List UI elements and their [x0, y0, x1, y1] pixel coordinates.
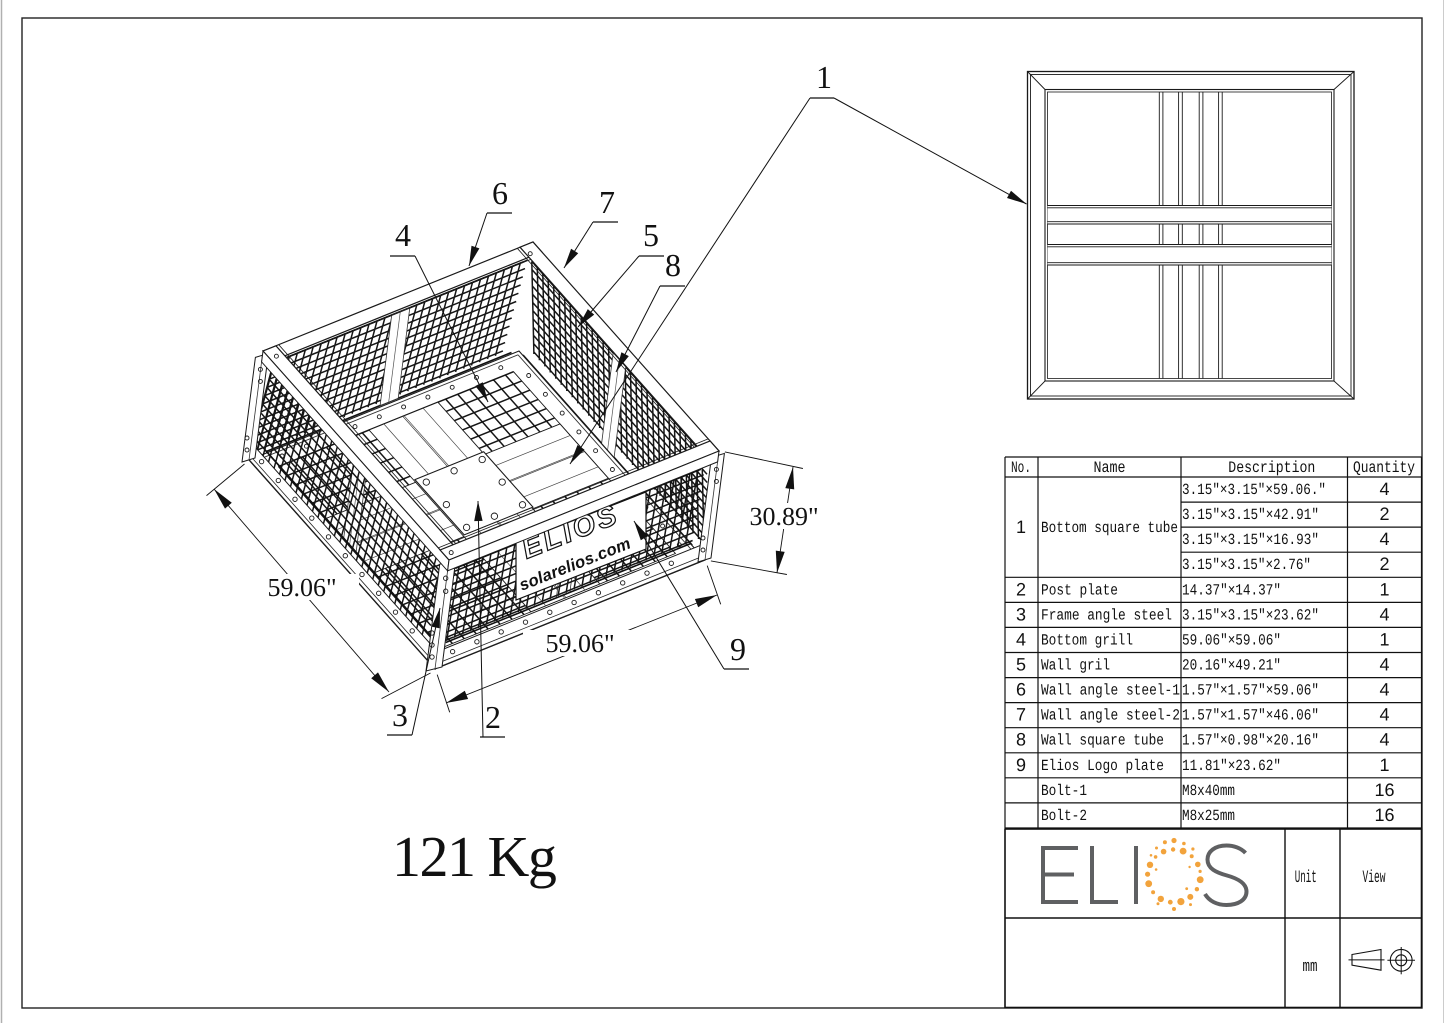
svg-text:mm: mm	[1303, 958, 1318, 977]
svg-text:Wall angle steel-1: Wall angle steel-1	[1041, 682, 1180, 700]
svg-text:View: View	[1363, 868, 1386, 888]
svg-text:3.15"×3.15"×42.91": 3.15"×3.15"×42.91"	[1182, 506, 1319, 524]
svg-text:3.15"×3.15"×59.06.": 3.15"×3.15"×59.06."	[1182, 481, 1326, 499]
svg-text:Elios Logo plate: Elios Logo plate	[1041, 757, 1164, 775]
svg-text:M8x25mm: M8x25mm	[1182, 807, 1235, 825]
svg-text:1: 1	[1379, 629, 1389, 649]
svg-text:2: 2	[1016, 579, 1026, 599]
svg-text:Quantity: Quantity	[1353, 459, 1415, 477]
svg-text:4: 4	[1379, 604, 1389, 624]
svg-text:6: 6	[1016, 680, 1026, 700]
svg-text:16: 16	[1374, 780, 1394, 800]
svg-text:No.: No.	[1011, 459, 1031, 477]
svg-text:Unit: Unit	[1295, 868, 1317, 888]
svg-text:9: 9	[730, 631, 746, 667]
svg-text:7: 7	[1016, 705, 1026, 725]
svg-text:11.81"×23.62": 11.81"×23.62"	[1182, 757, 1281, 775]
svg-text:14.37"×14.37": 14.37"×14.37"	[1182, 581, 1281, 599]
svg-text:20.16"×49.21": 20.16"×49.21"	[1182, 657, 1281, 675]
svg-text:1.57"×1.57"×46.06": 1.57"×1.57"×46.06"	[1182, 707, 1319, 725]
svg-text:16: 16	[1374, 805, 1394, 825]
svg-text:121 Kg: 121 Kg	[392, 824, 556, 889]
svg-text:Name: Name	[1094, 459, 1126, 477]
svg-text:4: 4	[395, 217, 411, 253]
svg-text:1: 1	[1016, 517, 1026, 537]
svg-text:1: 1	[816, 59, 832, 95]
svg-text:Bolt-1: Bolt-1	[1041, 782, 1087, 800]
svg-text:59.06": 59.06"	[545, 629, 614, 658]
svg-text:Bolt-2: Bolt-2	[1041, 807, 1087, 825]
svg-text:2: 2	[485, 699, 501, 735]
svg-text:8: 8	[1016, 730, 1026, 750]
svg-text:1: 1	[1379, 579, 1389, 599]
svg-text:3: 3	[392, 697, 408, 733]
svg-text:5: 5	[1016, 655, 1026, 675]
svg-text:1: 1	[1379, 755, 1389, 775]
svg-text:Wall gril: Wall gril	[1041, 657, 1110, 675]
svg-text:1.57"×0.98"×20.16": 1.57"×0.98"×20.16"	[1182, 732, 1319, 750]
svg-text:4: 4	[1379, 479, 1389, 499]
svg-text:2: 2	[1379, 554, 1389, 574]
svg-text:4: 4	[1379, 705, 1389, 725]
svg-text:3.15"×3.15"×16.93": 3.15"×3.15"×16.93"	[1182, 531, 1319, 549]
svg-text:3.15"×3.15"×23.62": 3.15"×3.15"×23.62"	[1182, 606, 1319, 624]
svg-text:7: 7	[599, 184, 615, 220]
svg-text:4: 4	[1379, 655, 1389, 675]
svg-text:6: 6	[492, 175, 508, 211]
svg-text:4: 4	[1379, 730, 1389, 750]
svg-text:M8x40mm: M8x40mm	[1182, 782, 1235, 800]
svg-text:Post plate: Post plate	[1041, 581, 1118, 599]
svg-text:Bottom square tube: Bottom square tube	[1041, 519, 1178, 537]
svg-text:3.15"×3.15"×2.76": 3.15"×3.15"×2.76"	[1182, 556, 1311, 574]
svg-text:9: 9	[1016, 755, 1026, 775]
svg-text:Description: Description	[1228, 459, 1315, 477]
svg-text:Wall angle steel-2: Wall angle steel-2	[1041, 707, 1180, 725]
svg-text:59.06"×59.06": 59.06"×59.06"	[1182, 631, 1281, 649]
svg-text:4: 4	[1016, 629, 1026, 649]
svg-text:1.57"×1.57"×59.06": 1.57"×1.57"×59.06"	[1182, 682, 1319, 700]
svg-text:8: 8	[665, 247, 681, 283]
svg-text:4: 4	[1379, 680, 1389, 700]
svg-text:2: 2	[1379, 504, 1389, 524]
svg-text:Frame angle steel: Frame angle steel	[1041, 606, 1172, 624]
svg-text:30.89": 30.89"	[749, 502, 818, 531]
svg-text:3: 3	[1016, 604, 1026, 624]
svg-text:Wall square tube: Wall square tube	[1041, 732, 1164, 750]
svg-text:59.06": 59.06"	[267, 573, 336, 602]
svg-text:4: 4	[1379, 529, 1389, 549]
svg-text:Bottom grill: Bottom grill	[1041, 631, 1133, 649]
svg-text:5: 5	[643, 217, 659, 253]
